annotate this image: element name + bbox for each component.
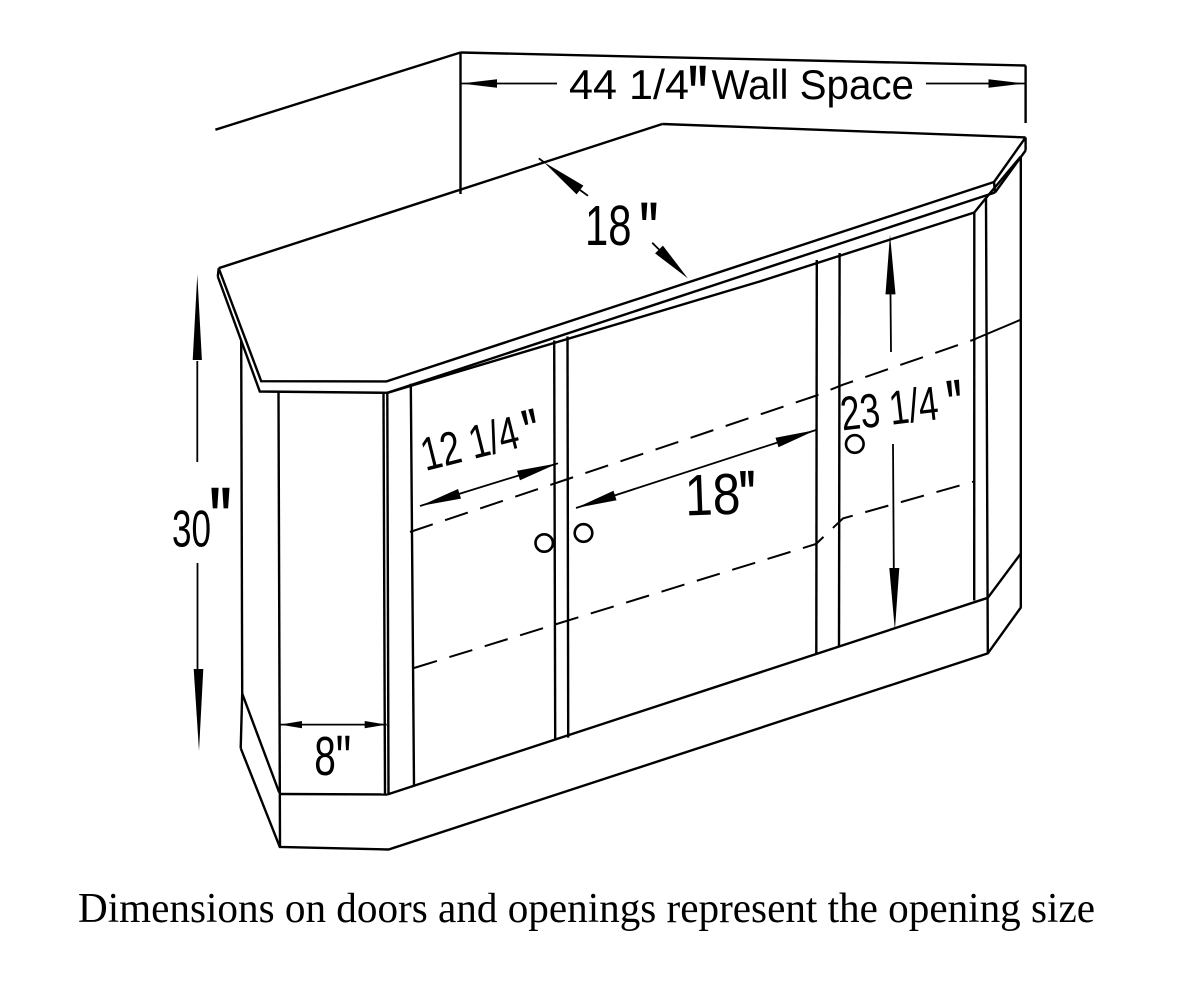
svg-text:8: 8 bbox=[314, 726, 336, 787]
svg-text:Wall Space: Wall Space bbox=[712, 61, 915, 108]
svg-text:44 1/4: 44 1/4 bbox=[569, 61, 689, 108]
svg-text:30: 30 bbox=[172, 500, 211, 558]
svg-text:18: 18 bbox=[585, 194, 632, 258]
svg-text:18: 18 bbox=[684, 462, 742, 529]
svg-text:Dimensions on doors and openin: Dimensions on doors and openings represe… bbox=[78, 885, 1095, 932]
svg-text:23 1/4: 23 1/4 bbox=[838, 377, 942, 441]
